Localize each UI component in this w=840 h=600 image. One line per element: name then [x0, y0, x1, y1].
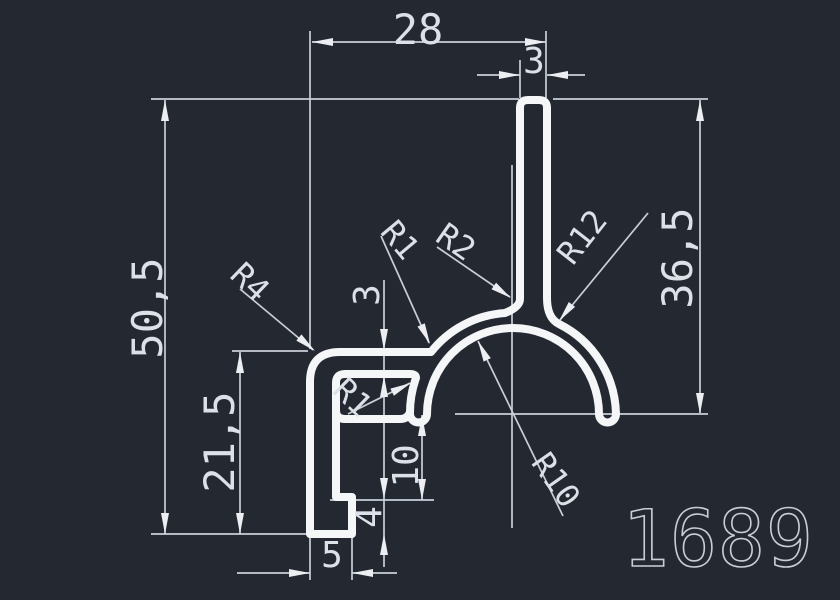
dim-inner-drop: 10 [386, 444, 427, 487]
radius-r1-arm: R1 [373, 213, 427, 267]
dim-stem-width: 3 [523, 41, 545, 82]
radius-r4: R4 [223, 255, 277, 309]
dim-overall-height: 50,5 [123, 257, 172, 358]
radius-r2: R2 [429, 215, 482, 268]
part-number-label: 1689 [622, 495, 814, 585]
dim-left-height: 21,5 [195, 391, 244, 492]
dim-arm-thickness: 3 [347, 284, 388, 306]
dim-right-height: 36,5 [653, 207, 702, 308]
dim-overall-width: 28 [393, 5, 444, 54]
cad-canvas: 28 3 50,5 21,5 36,5 3 10 4 5 R4 R1 R2 R1… [0, 0, 840, 600]
dimension-labels: 28 3 50,5 21,5 36,5 3 10 4 5 [123, 5, 702, 576]
dim-foot-height: 4 [349, 506, 390, 528]
cad-drawing: 28 3 50,5 21,5 36,5 3 10 4 5 R4 R1 R2 R1… [0, 0, 840, 600]
radius-r12: R12 [549, 203, 615, 272]
dim-foot-width: 5 [321, 535, 343, 576]
